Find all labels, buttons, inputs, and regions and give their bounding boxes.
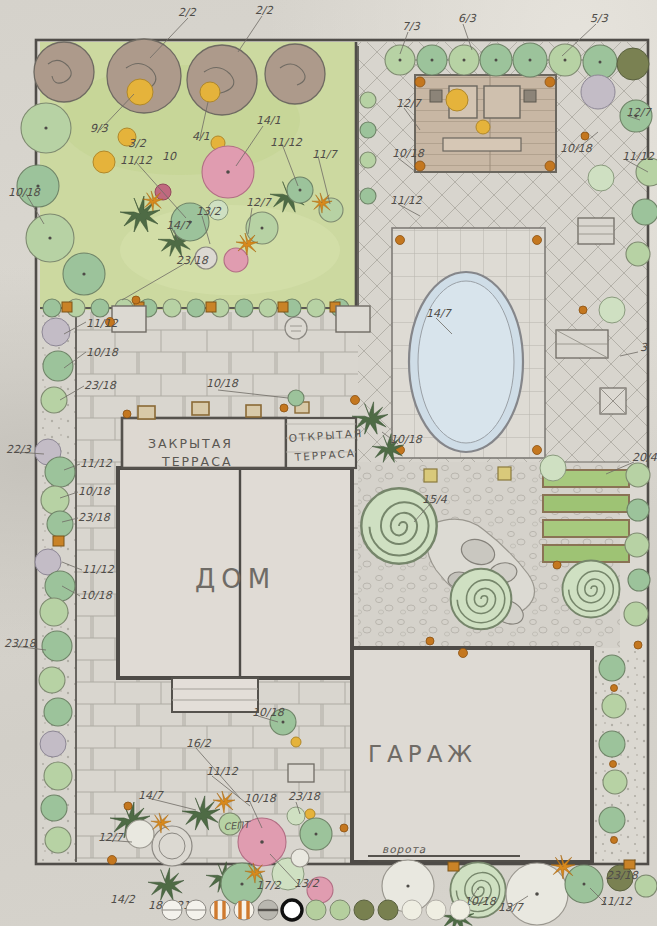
callout: 18 [148,899,163,912]
callout: 13/2 [196,205,222,218]
bbq-deck [415,75,556,172]
callout: 9/3 [90,122,109,135]
callout: 10/18 [80,589,113,602]
callout: 13/7 [498,901,525,914]
callout: 23/18 [84,379,117,392]
callout: 20/4 [632,451,657,464]
callout: 10 [162,150,177,163]
callout: 14/7 [138,789,165,802]
house-label: ДОМ [195,564,276,594]
closed-terrace-label-2: ТЕРРАСА [161,454,232,469]
callout: 12/7 [246,196,273,209]
callout: 12/7 [626,106,653,119]
callout: 16/2 [186,737,212,750]
callout: 5/3 [590,12,609,25]
callout: 10/18 [78,485,111,498]
callout: 23/18 [288,790,321,803]
callout: 17/2 [256,879,282,892]
callout: 15/4 [422,493,448,506]
callout: 11/12 [622,150,655,163]
callout: 14/7 [426,307,453,320]
callout: 13/2 [294,877,320,890]
callout: 10/18 [244,792,277,805]
callout: 10/18 [560,142,593,155]
callout: 23/18 [4,637,37,650]
legend-swatch [282,900,302,920]
legend-swatch [234,900,254,920]
callout: 10/18 [390,433,423,446]
pool [409,272,523,452]
callout: 10/18 [252,706,285,719]
callout: 11/12 [80,457,113,470]
callout: 2/2 [255,4,274,17]
callout: 11/12 [86,317,119,330]
legend-swatch [210,900,230,920]
callout: 10/18 [206,377,239,390]
callout: 11/7 [312,148,339,161]
callout: 14/1 [256,114,281,127]
callout: 11/12 [270,136,303,149]
callout: 3 [640,341,648,354]
callout: 2/2 [178,6,197,19]
callout: 11/12 [120,154,153,167]
callout: 23/18 [176,254,209,267]
callout: 11/12 [206,765,239,778]
garage-label: ГАРАЖ [368,741,477,767]
legend-swatch [306,900,326,920]
legend-swatch [402,900,422,920]
legend-swatch [354,900,374,920]
closed-terrace-label-1: ЗАКРЫТАЯ [148,436,233,451]
callout: 10/18 [8,186,41,199]
callout: 23/18 [78,511,111,524]
callout: 12/7 [396,97,423,110]
callout: 3/2 [128,137,147,150]
legend-swatch [450,900,470,920]
callout: 6/3 [458,12,477,25]
callout: 11/12 [390,194,423,207]
callout: 7/3 [402,20,421,33]
legend-swatch [426,900,446,920]
callout: 14/2 [110,893,136,906]
callout: 23/18 [606,869,639,882]
callout: 14/7 [166,219,193,232]
callout: 10/18 [392,147,425,160]
gate-label: ворота [382,843,426,856]
callout: 10/18 [86,346,119,359]
bottom-right-cluster [440,855,657,926]
callout: 4/1 [192,130,210,143]
legend-swatch [378,900,398,920]
callout: 11/12 [82,563,115,576]
legend-swatch [330,900,350,920]
callout: 12/7 [98,831,125,844]
garden-plan-drawing: ДОМ ГАРАЖ ЗАКРЫТАЯ ТЕРРАСА ОТКРЫТАЯ ТЕРР… [0,0,657,926]
callout: 22/3 [6,443,32,456]
callout: 11/12 [600,895,633,908]
landscape-plan-sheet: ДОМ ГАРАЖ ЗАКРЫТАЯ ТЕРРАСА ОТКРЫТАЯ ТЕРР… [0,0,657,926]
